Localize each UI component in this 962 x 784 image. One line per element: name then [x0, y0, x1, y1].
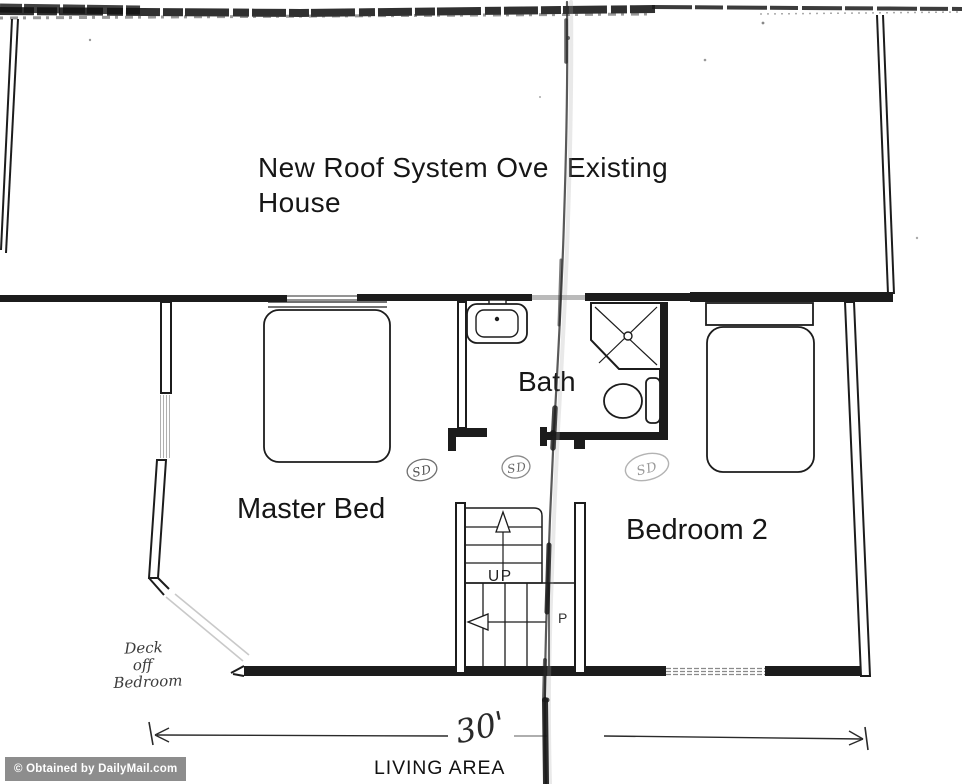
- dim-right-arrowhead: [849, 731, 863, 745]
- bottom-wall-chamfer: [231, 666, 244, 676]
- plan-title-part1: New Roof System Ove: [258, 152, 549, 183]
- bedroom2-bed-outline: [707, 327, 814, 472]
- stairs-lower-flight-label: P: [558, 610, 567, 626]
- plan-title-line2: House: [258, 185, 668, 220]
- toilet-bowl: [604, 384, 642, 418]
- bath-west-wall: [458, 302, 466, 428]
- stair-right-wall: [575, 503, 585, 673]
- smoke-detector-3: SD: [623, 449, 672, 485]
- dim-right-tick: [865, 727, 868, 750]
- bedroom2-label: Bedroom 2: [626, 514, 768, 547]
- master-bed-headboard: [268, 302, 387, 307]
- top-wall-west: [0, 295, 287, 302]
- window-left-master: [161, 395, 170, 458]
- top-wall-fold-faint: [532, 295, 585, 300]
- bath-door-jamb: [540, 427, 547, 446]
- master-left-wall-upper: [161, 302, 171, 393]
- living-area-label: LIVING AREA: [374, 757, 505, 780]
- bath-label: Bath: [518, 366, 576, 398]
- master-left-wall-foot: [149, 578, 169, 595]
- window-bottom-bedroom2: [666, 669, 765, 675]
- smoke-detector-marks: SD SD SD: [405, 449, 671, 485]
- top-wall-bath: [585, 293, 690, 301]
- bath-south-wall: [540, 432, 668, 440]
- smoke-detector-1: SD: [405, 457, 439, 484]
- deck-note-line3: Bedroom: [113, 673, 183, 692]
- corner-shower: [591, 303, 661, 369]
- dailymail-watermark: © Obtained by DailyMail.com: [5, 757, 186, 781]
- master-bed-furniture: [264, 302, 390, 462]
- sd2-text: SD: [506, 460, 528, 477]
- staircase: [465, 508, 575, 666]
- sink-faucet-dot: [495, 317, 499, 321]
- top-wall-east: [690, 292, 893, 302]
- toilet: [604, 378, 660, 423]
- master-bed-outline: [264, 310, 390, 462]
- bottom-wall-mid: [585, 666, 666, 676]
- scanned-floor-plan-page: SD SD SD: [0, 0, 962, 784]
- sd3-text: SD: [635, 460, 659, 480]
- deck-note: Deck off Bedroom: [112, 639, 183, 692]
- toilet-tank: [646, 378, 660, 423]
- bath-west-wall-foot: [448, 428, 487, 437]
- bathroom-fixtures: [467, 300, 661, 423]
- stairs-lower-treads: [483, 583, 549, 666]
- shower-drain: [624, 332, 632, 340]
- deck-note-line1: Deck: [124, 639, 182, 658]
- sink: [467, 300, 527, 343]
- stair-left-wall: [456, 503, 465, 673]
- hall-wall-stub: [574, 440, 585, 449]
- bottom-wall-east: [765, 666, 866, 676]
- bath-west-wall-leg: [448, 437, 456, 451]
- sd1-text: SD: [411, 462, 433, 480]
- stairs-left-arrow: [468, 614, 546, 630]
- master-left-wall-lower: [149, 460, 166, 578]
- dim-line-east: [604, 736, 863, 739]
- roof-edge-left: [1, 19, 18, 253]
- bedroom2-furniture: [706, 303, 814, 472]
- bedroom2-bed-headboard: [706, 303, 813, 325]
- plan-title-line1: New Roof System OveExisting: [258, 150, 668, 185]
- plan-title-part2: Existing: [567, 152, 668, 183]
- roof-edge-right: [877, 15, 894, 294]
- dimension-line: [149, 722, 868, 750]
- bottom-wall-west: [244, 666, 585, 676]
- dim-left-tick: [149, 722, 153, 745]
- master-bed-label: Master Bed: [237, 493, 385, 526]
- plan-title: New Roof System OveExisting House: [258, 150, 668, 220]
- dim-line-west: [157, 735, 448, 736]
- stairs-up-label: UP: [488, 568, 513, 586]
- bedroom2-right-wall: [845, 302, 870, 676]
- window-top-master: [287, 296, 357, 300]
- smoke-detector-2: SD: [501, 454, 532, 480]
